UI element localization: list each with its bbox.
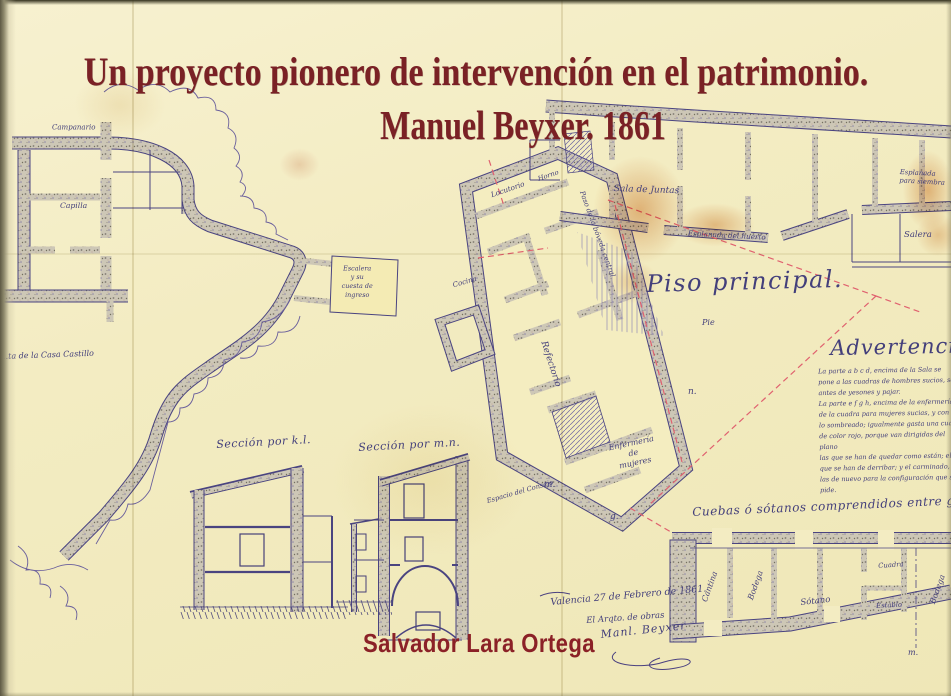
section-kl-drawing [180, 466, 348, 619]
label-piso-sub: Pie [702, 318, 715, 327]
section-mn-drawing [336, 454, 470, 640]
cover-title-line2: Manuel Beyxer. 1861 [380, 101, 666, 149]
advertencias-line: las de nuevo para la configuración que s… [820, 472, 951, 496]
advertencias-text: La parte a b c d, encima de la Sala se p… [818, 364, 951, 496]
label-advertencias-title: Advertencias [830, 333, 951, 360]
plan-letter-m: m. [544, 480, 555, 490]
author-name: Salvador Lara Ortega [362, 628, 594, 659]
tower-note-line: cuesta de ingreso [334, 282, 380, 300]
tower-note-line: Escalera [334, 264, 380, 273]
label-capilla: Capilla [60, 202, 87, 211]
label-salera: Salera [904, 230, 932, 240]
cellar-axis-letter: m. [908, 648, 918, 657]
book-cover: Piso principal. Pie Advertencias La part… [0, 0, 951, 696]
castle-plan [0, 122, 188, 322]
plan-letter-n: n. [688, 387, 697, 397]
advertencias-line: de color rojo, porque van dirigidas del … [819, 429, 951, 453]
cellar-room-establo: Establo [876, 601, 902, 610]
plan-letter-g: g. [610, 512, 619, 522]
label-campanario: Campanario [52, 124, 95, 132]
cover-title-line1: Un proyecto pionero de intervención en e… [83, 48, 867, 95]
tower-note-line: y su [334, 273, 380, 282]
label-esplanada-2: Esplanada para siembra [899, 168, 947, 187]
main-plan [440, 153, 686, 524]
label-piso-principal: Piso principal. [646, 265, 843, 298]
label-tower-note: Escalera y su cuesta de ingreso [334, 264, 380, 299]
